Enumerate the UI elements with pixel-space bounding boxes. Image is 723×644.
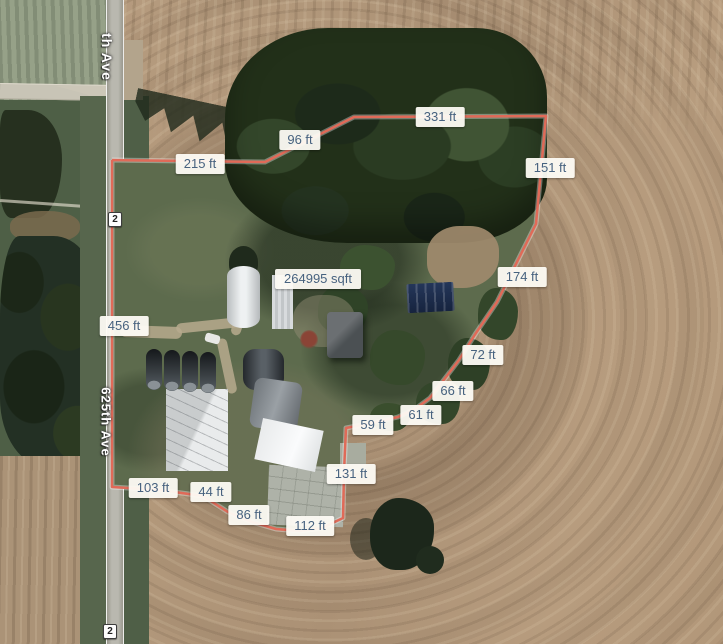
road-name-top: th Ave (99, 33, 115, 81)
measurement-label: 151 ft (526, 158, 575, 178)
satellite-map-canvas[interactable]: 215 ft96 ft331 ft151 ft174 ft72 ft66 ft6… (0, 0, 723, 644)
measurement-label: 66 ft (432, 381, 473, 401)
route-shield-top: 2 (108, 212, 122, 227)
road-name-main: 625th Ave (99, 387, 114, 456)
measurement-label: 59 ft (352, 415, 393, 435)
measurement-label: 44 ft (190, 482, 231, 502)
route-shield-bottom: 2 (103, 624, 117, 639)
measurement-label: 215 ft (176, 154, 225, 174)
measurement-label: 96 ft (279, 130, 320, 150)
area-label: 264995 sqft (275, 269, 361, 289)
measurement-label: 331 ft (416, 107, 465, 127)
measurement-layer: 215 ft96 ft331 ft151 ft174 ft72 ft66 ft6… (0, 0, 723, 644)
measurement-label: 86 ft (228, 505, 269, 525)
measurement-label: 112 ft (286, 516, 334, 536)
measurement-label: 174 ft (498, 267, 547, 287)
measurement-label: 456 ft (100, 316, 149, 336)
measurement-label: 72 ft (462, 345, 503, 365)
measurement-label: 131 ft (327, 464, 376, 484)
measurement-label: 61 ft (400, 405, 441, 425)
measurement-label: 103 ft (129, 478, 178, 498)
